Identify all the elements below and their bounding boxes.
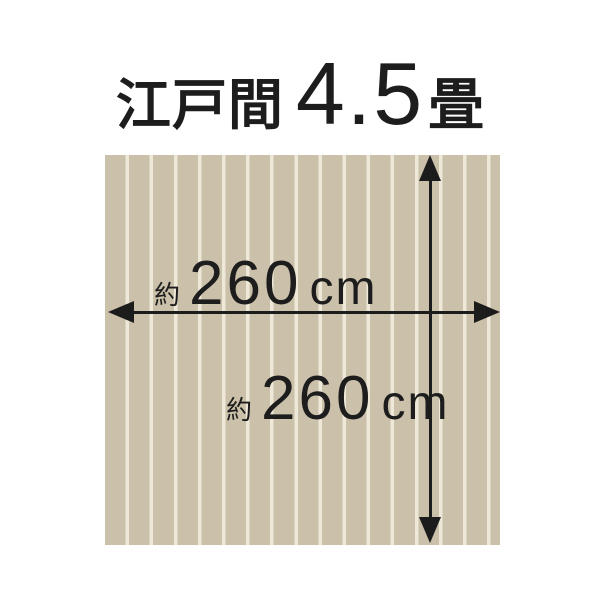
title-size-value: 4.5 — [296, 44, 424, 143]
width-arrowhead-right-icon — [474, 301, 500, 323]
width-dimension-label: 約260cm — [154, 253, 377, 315]
height-arrow-line — [429, 174, 432, 522]
page-title: 江戸間4.5畳 — [0, 50, 600, 138]
height-dimension-label: 約260cm — [226, 368, 449, 430]
height-arrowhead-top-icon — [419, 155, 441, 181]
height-unit: cm — [381, 377, 449, 430]
width-unit: cm — [309, 262, 377, 315]
height-approx-prefix: 約 — [226, 395, 252, 425]
rug-swatch — [105, 155, 500, 545]
width-value: 260 — [189, 249, 301, 318]
title-size-unit: 畳 — [428, 73, 484, 136]
height-value: 260 — [261, 364, 373, 433]
width-approx-prefix: 約 — [154, 280, 180, 310]
width-arrowhead-left-icon — [108, 301, 134, 323]
title-room-type: 江戸間 — [116, 74, 284, 136]
height-arrowhead-bottom-icon — [419, 517, 441, 543]
